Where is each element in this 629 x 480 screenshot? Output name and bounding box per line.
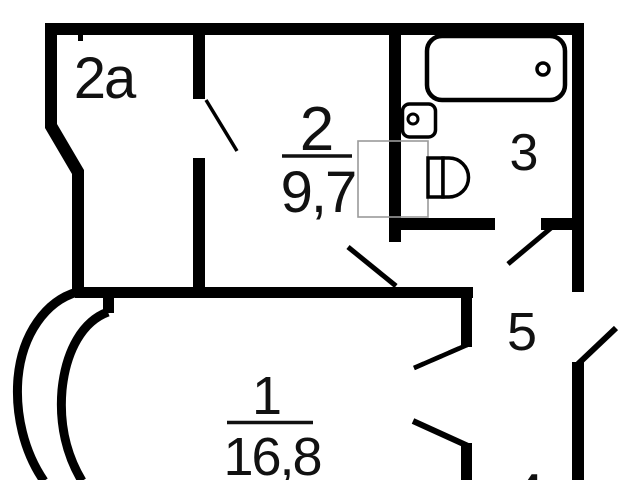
wall-bathroom-bottom-right bbox=[541, 218, 575, 230]
room-2-area: 9,7 bbox=[281, 160, 356, 225]
toilet-bowl-icon bbox=[443, 158, 469, 197]
wall-right-upper bbox=[572, 23, 584, 292]
room-3-label: 3 bbox=[510, 124, 537, 182]
bay-window-inner-arc bbox=[61, 312, 108, 480]
room-4-label: 4 bbox=[511, 462, 543, 480]
wall-partition-2a-lower bbox=[193, 158, 205, 292]
wall-bathroom-bottom-left bbox=[395, 218, 495, 230]
sink-drain-icon bbox=[408, 114, 418, 124]
wall-right-lower bbox=[572, 362, 584, 480]
door-swing-bathroom-icon bbox=[508, 228, 551, 264]
wall-funnel-diagonal bbox=[413, 421, 468, 446]
wall-top bbox=[45, 23, 583, 35]
room-1-area: 16,8 bbox=[223, 427, 320, 480]
floor-plan: 2a 2 9,7 3 5 1 16,8 4 bbox=[0, 0, 629, 480]
room-labels: 2a 2 9,7 3 5 1 16,8 4 bbox=[74, 46, 544, 480]
room-2-label: 2 bbox=[300, 95, 332, 164]
door-swing-room2-icon bbox=[348, 247, 396, 286]
wall-joint-notch bbox=[78, 35, 83, 41]
room-1-label: 1 bbox=[252, 366, 280, 426]
wall-middle-horizontal bbox=[75, 287, 473, 298]
floor-plan-canvas: 2a 2 9,7 3 5 1 16,8 4 bbox=[0, 0, 629, 480]
door-swing-entrance-icon bbox=[578, 328, 616, 364]
door-swing-room2a-icon bbox=[206, 100, 237, 151]
room-2a-label: 2a bbox=[74, 46, 137, 111]
toilet-tank-icon bbox=[428, 158, 443, 197]
room-5-label: 5 bbox=[507, 302, 535, 362]
bay-window bbox=[17, 292, 108, 480]
wall-partition-bathroom bbox=[389, 30, 401, 242]
wall-hall-vertical-upper bbox=[461, 287, 472, 347]
bathtub-drain-icon bbox=[537, 63, 549, 75]
wall-partition-2a-upper bbox=[193, 30, 205, 99]
